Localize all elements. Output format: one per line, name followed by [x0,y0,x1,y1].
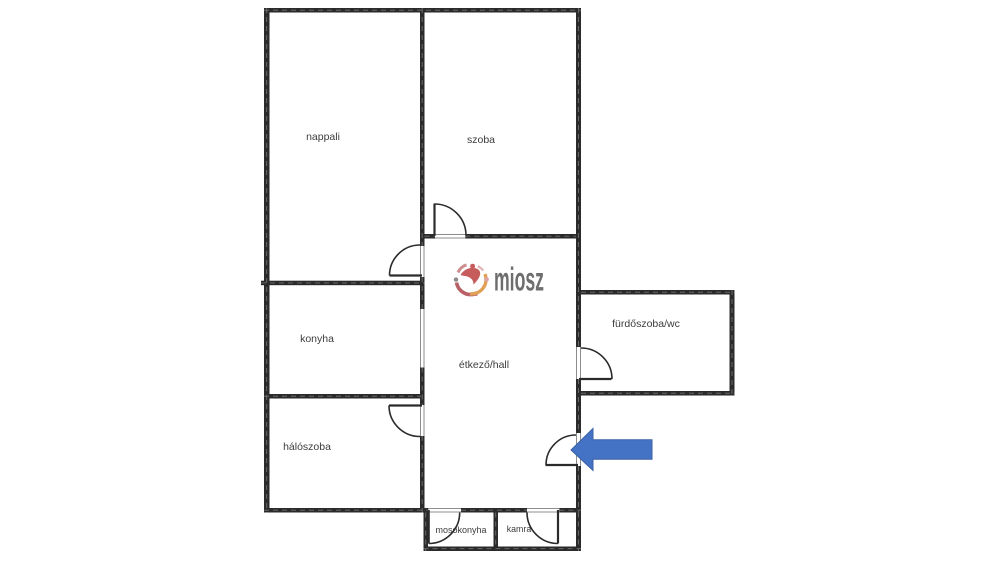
svg-text:miosz: miosz [494,261,544,298]
svg-text:mosókonyha: mosókonyha [435,525,486,535]
svg-text:nappali: nappali [306,131,340,143]
svg-text:hálószoba: hálószoba [283,441,331,453]
svg-text:fürdőszoba/wc: fürdőszoba/wc [612,318,680,330]
svg-text:kamra: kamra [507,524,532,534]
svg-text:étkező/hall: étkező/hall [459,359,509,371]
svg-text:konyha: konyha [300,333,334,345]
svg-text:szoba: szoba [467,134,495,146]
